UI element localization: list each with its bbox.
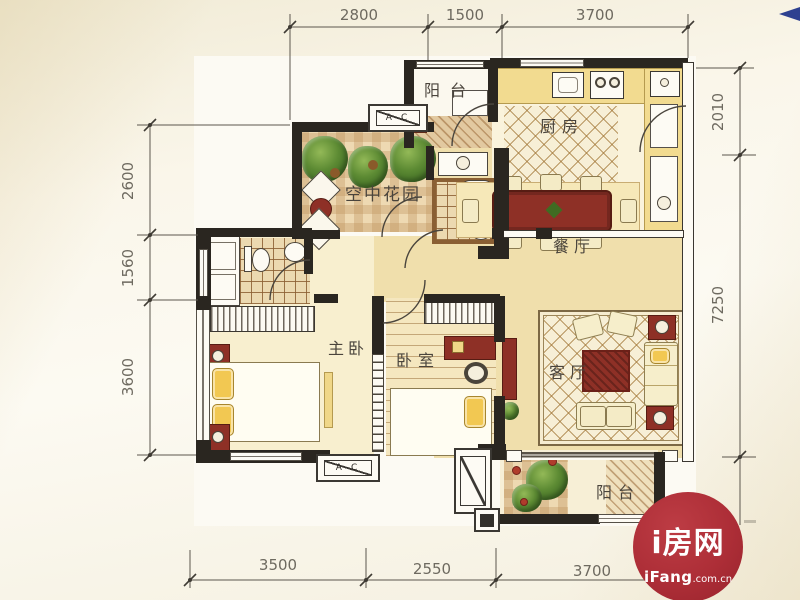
corner-arrow-icon [779, 7, 800, 21]
door-arcs [270, 104, 686, 323]
floor-plan-scan: A-C A-C 阳台 厨房 空中花园 餐厅 主卧 卧室 客厅 阳台 2800 1… [0, 0, 800, 600]
ifang-watermark: i房网 iFang.com.cn [633, 492, 743, 600]
ifang-logo-url: iFang.com.cn [633, 568, 743, 586]
ifang-logo-text: i房网 [633, 518, 743, 562]
